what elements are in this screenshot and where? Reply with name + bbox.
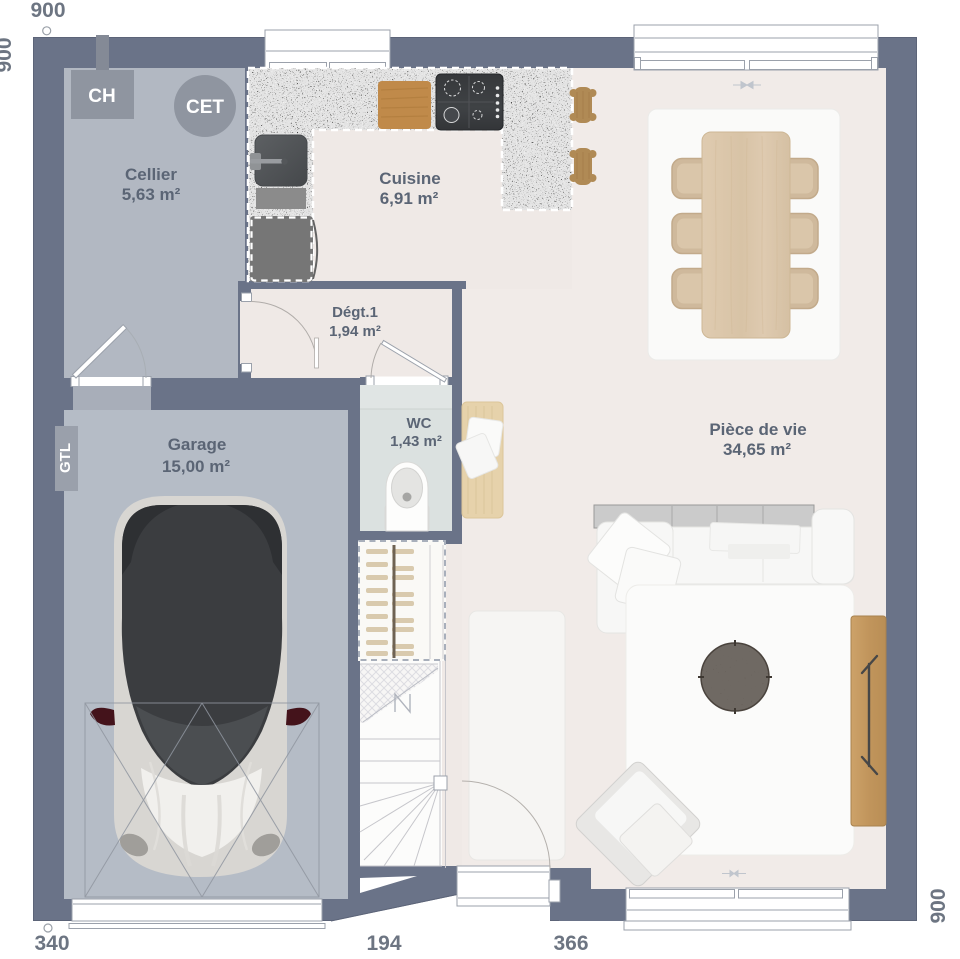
svg-text:WC: WC xyxy=(407,415,432,432)
svg-text:1,94 m²: 1,94 m² xyxy=(329,323,381,340)
svg-text:194: 194 xyxy=(366,932,401,955)
svg-text:Pièce de vie: Pièce de vie xyxy=(709,420,806,439)
svg-text:GTL: GTL xyxy=(57,443,74,473)
svg-text:5,63 m²: 5,63 m² xyxy=(122,185,181,204)
svg-text:6,91 m²: 6,91 m² xyxy=(380,189,439,208)
svg-text:Dégt.1: Dégt.1 xyxy=(332,304,378,321)
svg-text:900: 900 xyxy=(30,0,65,22)
svg-text:Cellier: Cellier xyxy=(125,165,177,184)
svg-text:900: 900 xyxy=(0,37,16,72)
svg-text:Cuisine: Cuisine xyxy=(379,169,440,188)
svg-text:34,65 m²: 34,65 m² xyxy=(723,440,791,459)
svg-text:900: 900 xyxy=(927,888,950,923)
svg-text:CH: CH xyxy=(88,86,115,107)
svg-text:CET: CET xyxy=(186,97,224,118)
svg-text:15,00 m²: 15,00 m² xyxy=(162,457,230,476)
svg-text:340: 340 xyxy=(34,932,69,955)
svg-text:366: 366 xyxy=(553,932,588,955)
svg-text:Garage: Garage xyxy=(168,435,227,454)
svg-text:1,43 m²: 1,43 m² xyxy=(390,433,442,450)
